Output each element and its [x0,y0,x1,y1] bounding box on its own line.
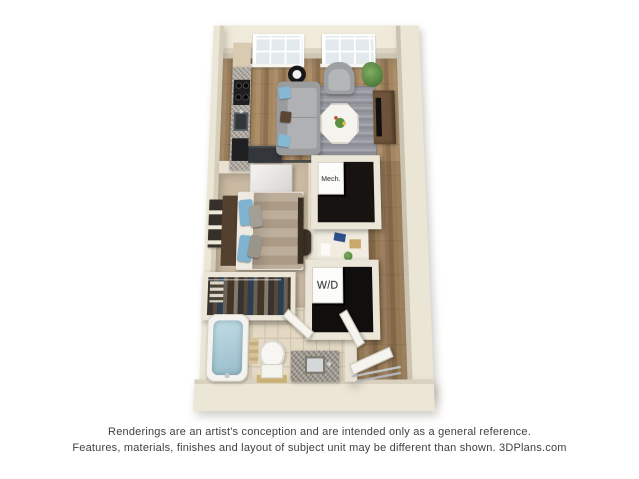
flower [334,116,338,120]
armchair [324,62,355,94]
tv [376,98,382,137]
floor-lamp-shade [292,70,301,79]
mech-label: Mech. [318,162,344,195]
throw-pillow [277,134,291,148]
armchair-cushion [328,69,350,90]
kitchen-cabinet [233,43,252,69]
tub-faucet [225,373,230,379]
potted-plant [361,62,383,87]
sofa-seam [288,117,317,118]
stove-burner [235,82,241,88]
toilet-tank [261,364,283,378]
washer-dryer-label: W/D [312,267,343,304]
kitchen-sink [233,112,248,130]
disclaimer-line1: Renderings are an artist's conception an… [0,424,639,440]
floor-plan: Mech. W/D [191,26,438,418]
stove-burner [243,82,249,88]
desk-paper [321,243,331,255]
bed-comforter [252,193,304,269]
sofa-seat [287,88,317,149]
bottom-wall [193,380,435,412]
disclaimer: Renderings are an artist's conception an… [0,424,639,456]
bathtub [205,314,249,382]
vanity-sink [305,356,325,374]
vanity-faucet [327,362,331,366]
bathtub-water [212,320,244,375]
closet-rod [208,279,281,280]
closet-linens [209,281,223,302]
bed-pillow [248,205,263,229]
stove-burner [242,94,249,100]
stove-burner [235,94,242,100]
foot-bench [298,198,304,264]
disclaimer-line2: Features, materials, finishes and layout… [0,440,639,456]
stove [233,80,250,105]
window [252,34,304,67]
flower [342,122,346,126]
throw-pillow [278,86,291,99]
vanity [291,351,339,382]
dishwasher [231,138,248,161]
floor-plan-rendering: Mech. W/D [0,0,639,479]
sliding-door [249,164,292,193]
mech-closet: Mech. [311,155,381,229]
desk-books [349,239,361,248]
throw-pillow [280,111,292,123]
desk-books [333,232,346,242]
washer-dryer-closet: W/D [305,260,380,340]
towel [249,338,259,364]
